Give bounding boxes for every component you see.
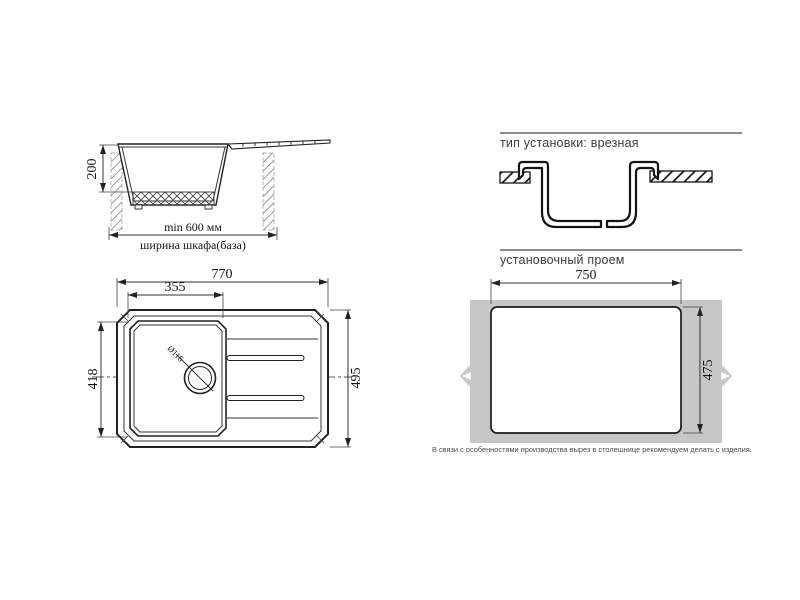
- svg-text:750: 750: [576, 268, 597, 283]
- svg-text:495: 495: [349, 368, 364, 389]
- side-view-drawing: 200 min 600 мм ширина шкафа(база): [85, 128, 345, 260]
- top-view-drawing: Ø116 770 355 418 495: [85, 265, 375, 460]
- svg-text:418: 418: [86, 369, 101, 390]
- dim-label-min600: min 600 мм: [164, 220, 222, 234]
- svg-text:475: 475: [701, 360, 716, 381]
- dim-overall-depth-495: 495: [330, 310, 364, 447]
- countertop-bars: [500, 171, 712, 183]
- cabinet-width-label: ширина шкафа(база): [140, 238, 246, 252]
- dim-overall-width-770: 770: [117, 267, 328, 307]
- cutout-opening: [491, 307, 681, 433]
- cutout-section-title: установочный проем: [500, 253, 625, 267]
- dim-label-200: 200: [85, 159, 100, 180]
- dim-cutout-width-750: 750: [491, 268, 681, 304]
- cross-section-drawing: [495, 155, 745, 245]
- svg-text:355: 355: [165, 280, 186, 295]
- cutout-drawing: 750 475: [430, 268, 770, 450]
- inset-sink-profile: [519, 162, 658, 227]
- dim-cabinet-width: min 600 мм ширина шкафа(база): [109, 220, 277, 252]
- installation-section-rule: [500, 132, 742, 134]
- sink-installation-drawing: 200 min 600 мм ширина шкафа(база) тип ус…: [0, 0, 800, 600]
- sink-profile: [118, 140, 330, 209]
- cutout-section-rule: [500, 249, 742, 251]
- svg-text:770: 770: [212, 267, 233, 282]
- production-note: В связи с особенностями производства выр…: [432, 445, 772, 454]
- installation-section-title: тип установки: врезная: [500, 136, 639, 150]
